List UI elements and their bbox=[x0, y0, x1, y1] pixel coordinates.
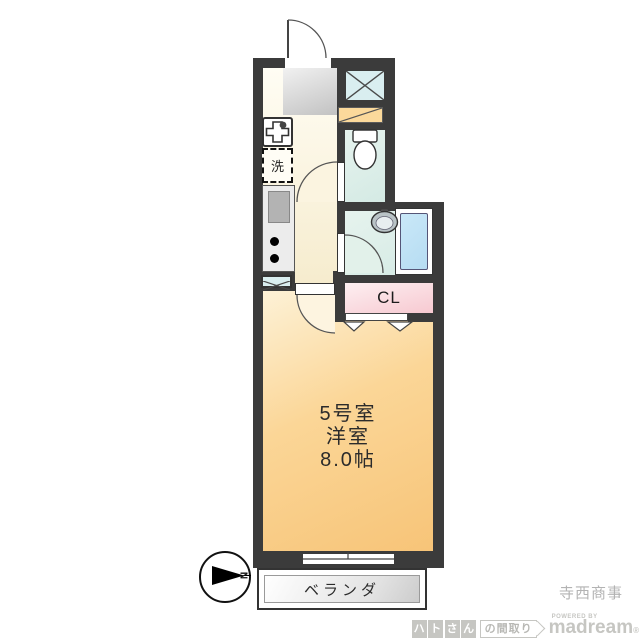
duct-x-icon bbox=[263, 281, 290, 290]
kitchen-counter bbox=[262, 185, 295, 272]
room-size: 8.0帖 bbox=[263, 449, 433, 472]
balcony-inner: ベランダ bbox=[264, 575, 420, 603]
closet-folding-door bbox=[345, 313, 408, 321]
balcony-label: ベランダ bbox=[304, 579, 380, 600]
main-room-label: 5号室 洋室 8.0帖 bbox=[263, 403, 433, 472]
logo-char-2: ト bbox=[428, 620, 443, 638]
wall-far-right bbox=[433, 202, 444, 568]
logo-brand-block: POWERED BY madream® bbox=[549, 614, 639, 638]
bathtub-inner bbox=[400, 213, 428, 270]
room-type: 洋室 bbox=[263, 426, 433, 449]
logo-char-4: ん bbox=[461, 620, 476, 638]
registered-mark: ® bbox=[633, 626, 639, 635]
stove-burner-1 bbox=[270, 237, 279, 246]
shoe-cabinet bbox=[338, 107, 383, 123]
toilet-door-leaf bbox=[337, 162, 345, 202]
washing-machine-space: 洗 bbox=[262, 148, 293, 183]
wall-closet-left bbox=[333, 271, 345, 322]
madream-logo: ハ ト さ ん の間取り POWERED BY madream® bbox=[412, 614, 639, 638]
logo-char-3: さ bbox=[445, 620, 460, 638]
utility-sink-box bbox=[262, 117, 293, 147]
kitchen-sink bbox=[268, 191, 290, 223]
logo-suffix-text: の間取り bbox=[485, 623, 533, 635]
logo-suffix-arrow: の間取り bbox=[480, 620, 537, 638]
closet-label: CL bbox=[377, 288, 401, 308]
entrance-opening bbox=[285, 58, 331, 68]
main-room-door-leaf bbox=[295, 283, 335, 295]
wall-bath-bottom bbox=[337, 275, 444, 283]
brand-text: madream® bbox=[549, 620, 639, 638]
utility-sink-icon bbox=[264, 119, 291, 145]
compass-icon: N bbox=[200, 552, 251, 602]
balcony: ベランダ bbox=[257, 568, 427, 610]
entrance-genkan-floor bbox=[283, 68, 337, 115]
toilet-room-floor bbox=[345, 130, 385, 202]
stove-burner-2 bbox=[270, 254, 279, 263]
entrance-door-icon bbox=[288, 20, 326, 58]
wall-closet-stub bbox=[408, 313, 433, 322]
balcony-window bbox=[303, 554, 394, 564]
logo-char-1: ハ bbox=[412, 620, 427, 638]
shoe-cabinet-diagonal-icon bbox=[339, 108, 382, 122]
room-number: 5号室 bbox=[263, 403, 433, 426]
bathtub bbox=[395, 208, 433, 275]
closet-area: CL bbox=[345, 283, 433, 313]
shaft-x-icon bbox=[346, 71, 384, 100]
brand-word: madream bbox=[549, 617, 634, 638]
duct-box bbox=[261, 275, 292, 288]
company-name: 寺西商事 bbox=[559, 582, 623, 603]
pipe-shaft-box bbox=[343, 68, 387, 103]
washer-label: 洗 bbox=[271, 156, 284, 175]
compass-north-letter: N bbox=[238, 572, 249, 579]
bathroom-door-leaf bbox=[337, 233, 345, 273]
floor-plan-canvas: CL 洗 bbox=[0, 0, 640, 640]
